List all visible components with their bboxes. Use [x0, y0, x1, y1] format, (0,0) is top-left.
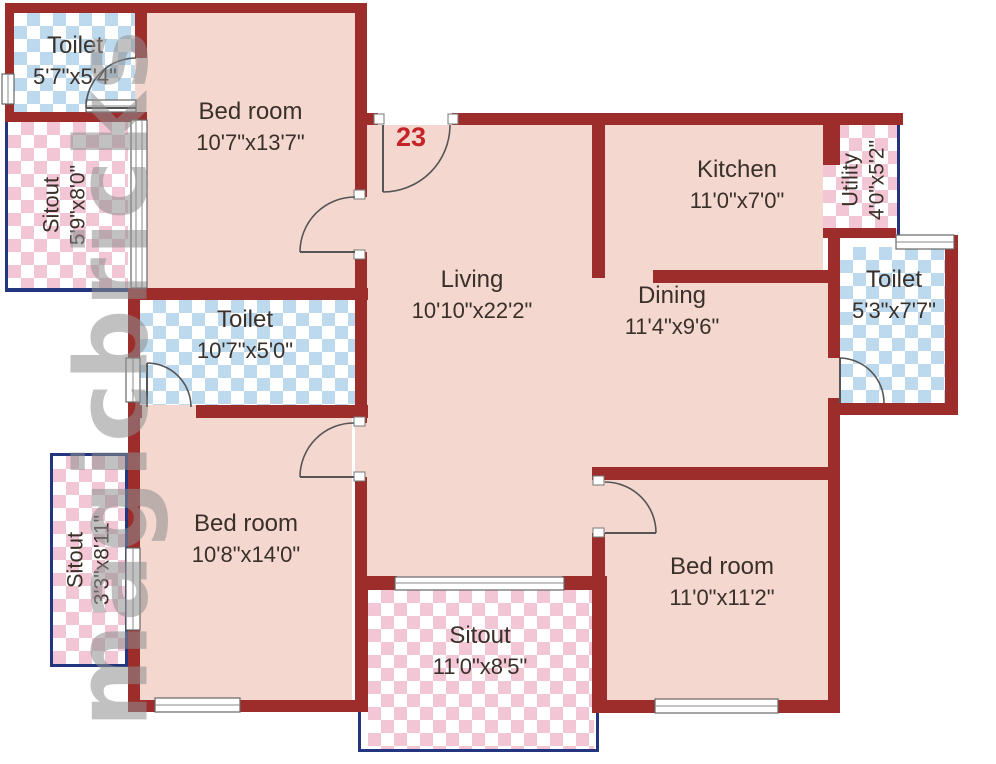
room-name: Toilet [836, 266, 952, 294]
room-name: Sitout [380, 622, 580, 650]
label-living: Living 10'10"x22'2" [368, 266, 576, 323]
label-bedroom-top: Bed room 10'7"x13'7" [148, 98, 353, 155]
room-dims: 10'8"x14'0" [140, 543, 352, 567]
room-dims: 3'3"x8'11" [91, 515, 114, 605]
room-name: Sitout [38, 165, 63, 245]
label-sitout-left-lower: Sitout 3'3"x8'11" [62, 515, 113, 605]
label-kitchen: Kitchen 11'0"x7'0" [640, 156, 834, 213]
label-sitout-left-upper: Sitout 5'9"x8'0" [38, 165, 89, 245]
room-name: Bed room [614, 553, 830, 581]
floor-plan: Toilet 5'7"x5'4" Bed room 10'7"x13'7" To… [0, 0, 996, 764]
room-name: Dining [574, 282, 770, 310]
label-utility: Utility 4'0"x5'2" [837, 140, 888, 220]
room-name: Bed room [140, 510, 352, 538]
door-jambs [354, 114, 604, 537]
room-dims: 11'0"x7'0" [640, 189, 834, 213]
label-dining: Dining 11'4"x9'6" [574, 282, 770, 339]
room-dims: 4'0"x5'2" [866, 140, 889, 220]
room-name: Toilet [145, 306, 345, 334]
label-toilet-top-left: Toilet 5'7"x5'4" [16, 32, 134, 89]
room-dims: 5'3"x7'7" [836, 299, 952, 323]
room-dims: 11'4"x9'6" [574, 315, 770, 339]
room-dims: 11'0"x8'5" [380, 655, 580, 679]
room-dims: 10'7"x5'0" [145, 339, 345, 363]
room-dims: 11'0"x11'2" [614, 586, 830, 610]
room-dims: 10'10"x22'2" [368, 299, 576, 323]
label-toilet-right: Toilet 5'3"x7'7" [836, 266, 952, 323]
unit-number: 23 [396, 122, 426, 153]
label-toilet-mid-left: Toilet 10'7"x5'0" [145, 306, 345, 363]
room-name: Living [368, 266, 576, 294]
label-bedroom-left: Bed room 10'8"x14'0" [140, 510, 352, 567]
label-sitout-bottom: Sitout 11'0"x8'5" [380, 622, 580, 679]
room-name: Sitout [62, 515, 87, 605]
room-dims: 5'9"x8'0" [67, 165, 90, 245]
room-name: Toilet [16, 32, 134, 60]
room-dims: 5'7"x5'4" [16, 65, 134, 89]
room-dims: 10'7"x13'7" [148, 131, 353, 155]
label-bedroom-bottom-right: Bed room 11'0"x11'2" [614, 553, 830, 610]
room-name: Utility [837, 140, 862, 220]
room-name: Kitchen [640, 156, 834, 184]
room-name: Bed room [148, 98, 353, 126]
